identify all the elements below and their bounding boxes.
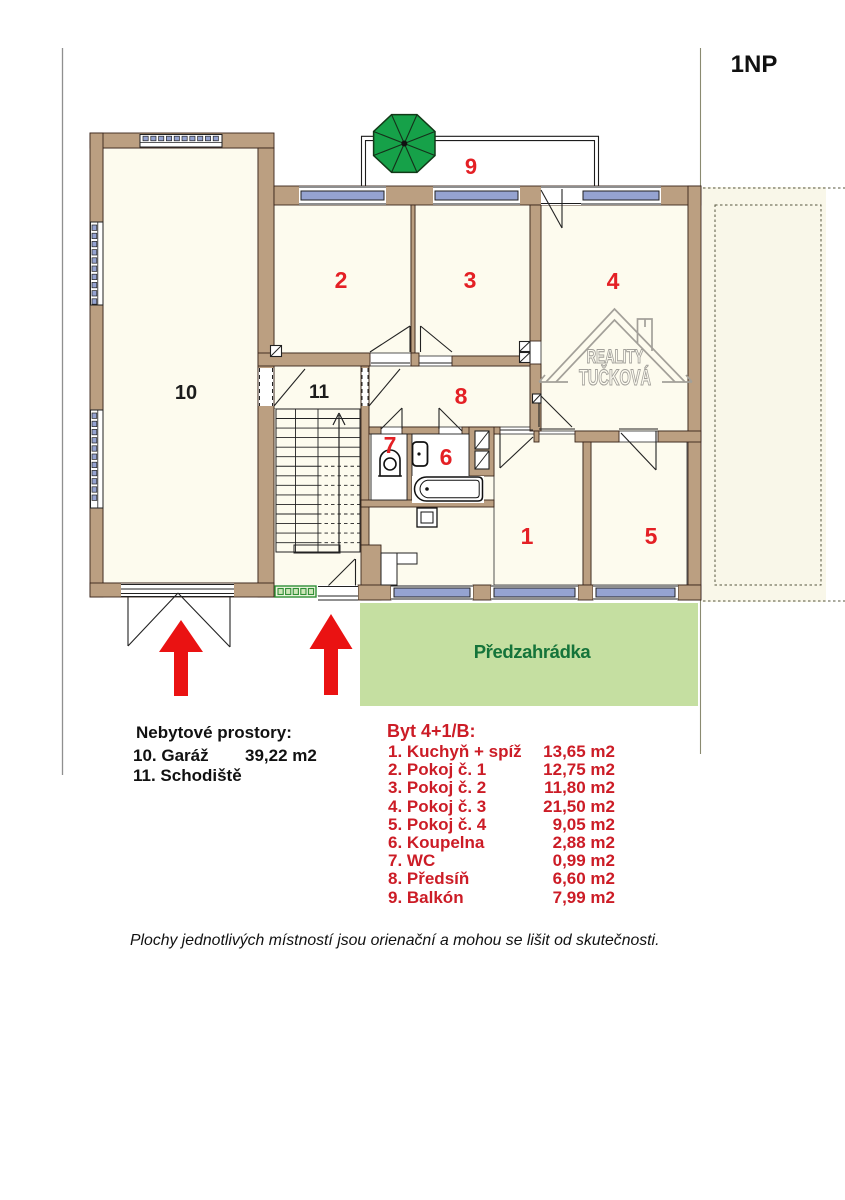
svg-text:11: 11 xyxy=(309,382,330,403)
svg-text:39,22 m2: 39,22 m2 xyxy=(245,746,317,765)
svg-text:12,75 m2: 12,75 m2 xyxy=(543,760,615,779)
svg-text:1: 1 xyxy=(521,523,534,549)
svg-text:9: 9 xyxy=(465,154,477,179)
svg-text:3: 3 xyxy=(464,267,477,293)
svg-text:11. Schodiště: 11. Schodiště xyxy=(133,766,242,785)
svg-text:8. Předsíň: 8. Předsíň xyxy=(388,869,469,888)
svg-text:Předzahrádka: Předzahrádka xyxy=(474,641,592,662)
svg-text:4: 4 xyxy=(607,268,620,294)
svg-text:4. Pokoj č. 3: 4. Pokoj č. 3 xyxy=(388,797,486,816)
svg-text:3. Pokoj č. 2: 3. Pokoj č. 2 xyxy=(388,778,486,797)
svg-text:9. Balkón: 9. Balkón xyxy=(388,888,464,907)
svg-text:11,80 m2: 11,80 m2 xyxy=(544,778,615,797)
svg-text:2. Pokoj č. 1: 2. Pokoj č. 1 xyxy=(388,760,486,779)
svg-text:6. Koupelna: 6. Koupelna xyxy=(388,833,485,852)
svg-text:10. Garáž: 10. Garáž xyxy=(133,746,209,765)
svg-text:5: 5 xyxy=(645,523,658,549)
svg-text:Plochy jednotlivých místností: Plochy jednotlivých místností jsou orien… xyxy=(130,932,659,949)
svg-text:0,99 m2: 0,99 m2 xyxy=(553,851,615,870)
svg-text:7,99 m2: 7,99 m2 xyxy=(553,888,615,907)
svg-text:2,88 m2: 2,88 m2 xyxy=(553,833,615,852)
svg-text:5. Pokoj č. 4: 5. Pokoj č. 4 xyxy=(388,815,487,834)
svg-text:13,65 m2: 13,65 m2 xyxy=(543,742,615,761)
svg-text:7: 7 xyxy=(384,432,397,458)
svg-text:TUČKOVÁ: TUČKOVÁ xyxy=(579,365,651,390)
svg-text:2: 2 xyxy=(335,267,348,293)
svg-text:8: 8 xyxy=(455,383,468,409)
svg-text:Nebytové prostory:: Nebytové prostory: xyxy=(136,723,292,742)
svg-text:1NP: 1NP xyxy=(731,51,778,78)
svg-text:7. WC: 7. WC xyxy=(388,851,435,870)
svg-text:1. Kuchyň + spíž: 1. Kuchyň + spíž xyxy=(388,742,522,761)
svg-text:6: 6 xyxy=(440,444,453,470)
svg-text:6,60 m2: 6,60 m2 xyxy=(553,869,615,888)
svg-text:21,50 m2: 21,50 m2 xyxy=(543,797,615,816)
svg-text:Byt 4+1/B:: Byt 4+1/B: xyxy=(387,721,476,741)
svg-text:10: 10 xyxy=(175,382,197,404)
svg-text:9,05 m2: 9,05 m2 xyxy=(553,815,615,834)
